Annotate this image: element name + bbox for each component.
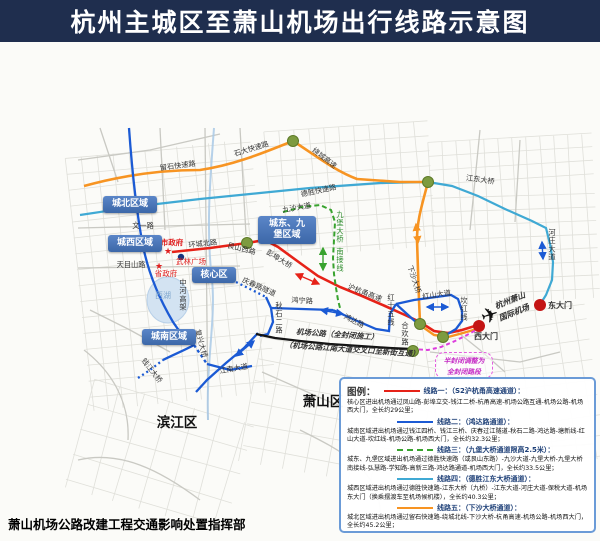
- route-map-page: ★ ★ ✈ 留石快速路石大快速路绕城高速德胜快速路九沙大道江东大桥河庄大道九堡大…: [0, 0, 600, 541]
- airport-east-gate-dot: [534, 299, 546, 311]
- legend-route-row: 线路四：（德胜江东大桥通道）：: [393, 474, 588, 484]
- road-label-hong15-line: 红十五线: [387, 293, 394, 327]
- legend-route-desc: 城南区域进出机场通过钱江四桥、钱江三桥、庆春过江隧道-秋石二路-鸿达路-塘新线-…: [347, 428, 588, 445]
- poi-city-government: 市政府: [161, 237, 184, 247]
- road-label-jiangdong-bridge: 江东大桥: [465, 173, 495, 186]
- road-label-jiubao-bridge: 九堡大桥: [336, 210, 344, 244]
- closure-note-line1: 机场公路（全封闭施工）: [296, 327, 379, 342]
- route-1-s2-line: [172, 240, 478, 333]
- road-label-kanhong-line: 坎红线: [460, 296, 467, 321]
- road-label-hongda-road: 鸿达路: [342, 312, 365, 330]
- issuer-text: 萧山机场公路改建工程交通影响处置指挥部: [8, 514, 246, 533]
- road-label-south-link: 南接线: [336, 247, 343, 272]
- closure-note-line2: （机场公路江南大道交叉口至新街互通）: [285, 340, 420, 358]
- legend-route-row: 线路三：（九堡大桥通道限高2.5米）：: [393, 445, 588, 455]
- legend-route-desc: 核心区进出机场通过凤山路-彭埠立交-钱江二桥-杭甬高速-机场公路互通-机场公路-…: [347, 399, 588, 416]
- legend-route-desc: 城西区域进出机场通过德胜快速路-江东大桥（九桥）-江东大道-河庄大道-保税大道-…: [347, 485, 588, 502]
- legend-title: 图例：: [347, 384, 376, 398]
- arrow-blue-hezhuang: [542, 242, 543, 259]
- arrow-blue-jiangnan: [236, 341, 254, 356]
- title-bar: 杭州主城区至萧山机场出行线路示意图: [0, 0, 600, 42]
- road-label-ring-expressway: 绕城高速: [310, 146, 338, 171]
- junction-dot: [423, 177, 434, 188]
- legend-route-row: 图例：线路一：（S2沪杭甬高速通道）：: [347, 384, 588, 398]
- road-label-wenyi-road: 文一路: [132, 221, 154, 230]
- legend-route-row: 线路五：（下沙大桥通道）：: [393, 503, 588, 513]
- poi-wulin-square: 武林广场: [176, 256, 206, 266]
- junction-dot: [288, 136, 299, 147]
- legend-box: 图例：线路一：（S2沪杭甬高速通道）：核心区进出机场通过凤山路-彭埠立交-钱江二…: [339, 377, 596, 533]
- road-label-desheng-expressway: 德胜快速路: [300, 182, 337, 198]
- legend-route-name: 线路五：（下沙大桥通道）：: [437, 503, 521, 513]
- legend-body: 图例：线路一：（S2沪杭甬高速通道）：核心区进出机场通过凤山路-彭埠立交-钱江二…: [347, 384, 588, 531]
- region-badge: 核心区: [192, 267, 236, 283]
- district-binjiang-label: 滨江区: [157, 414, 198, 431]
- west-lake-label: 西湖: [155, 291, 171, 300]
- legend-line-sample: [397, 507, 433, 509]
- legend-line-sample: [384, 390, 420, 392]
- airport-east-gate-label: 东大门: [548, 300, 572, 310]
- road-label-shida-expressway: 石大快速路: [233, 139, 270, 158]
- road-label-hongshan-avenue: 红山大道: [422, 288, 452, 301]
- legend-route-row: 线路二：（鸿达路通道）：: [393, 417, 588, 427]
- road-label-qianjiang-bridge: 钱江大桥: [140, 356, 165, 384]
- region-badge: 城西区域: [108, 235, 162, 252]
- region-badge: 城北区域: [103, 196, 157, 213]
- legend-route-name: 线路二：（鸿达路通道）：: [437, 417, 514, 427]
- legend-line-sample: [397, 449, 433, 451]
- road-label-qiushi-2nd-road: 秋石二路: [275, 301, 282, 335]
- road-label-hongning-road: 鸿宁路: [291, 295, 313, 305]
- city-gov-star-icon: ★: [164, 247, 172, 257]
- legend-line-sample: [397, 421, 433, 423]
- page-title: 杭州主城区至萧山机场出行线路示意图: [70, 3, 529, 39]
- district-xiaoshan-label: 萧山区: [303, 393, 344, 410]
- road-label-hehuan-road: 合欢路: [401, 321, 408, 346]
- junction-dot: [438, 332, 449, 343]
- legend-route-desc: 城北区域进出机场通过留石快速路-绕城北线-下沙大桥-杭甬高速-机场公路-机场西大…: [347, 514, 588, 531]
- road-label-tianmushan-road: 天目山路: [117, 260, 146, 269]
- legend-route-desc: 城东、九堡区域进出机场通过德胜快速路（或艮山东路）-九沙大道-九堡大桥-九堡大桥…: [347, 456, 588, 473]
- legend-route-name: 线路四：（德胜江东大桥通道）：: [437, 474, 535, 484]
- region-badge: 城东、九 堡区域: [258, 216, 316, 244]
- legend-route-name: 线路一：（S2沪杭甬高速通道）：: [424, 386, 525, 396]
- region-badge: 城南区域: [142, 329, 196, 345]
- closure-adjustment-note: 半封闭调整为 全封闭路段: [435, 352, 493, 379]
- road-label-xiasha-bridge: 下沙大桥: [406, 264, 423, 294]
- road-label-zhonghe-viaduct: 中河高架: [179, 278, 186, 312]
- poi-provincial-government: 省政府: [155, 268, 178, 278]
- legend-line-sample: [397, 478, 433, 480]
- road-label-hezhuang-avenue: 河庄大道: [548, 228, 555, 262]
- legend-route-name: 线路三：（九堡大桥通道限高2.5米）：: [437, 445, 554, 455]
- road-label-jiusha-avenue: 九沙大道: [282, 201, 312, 215]
- airport-west-gate-label: 西大门: [474, 331, 498, 341]
- junction-dot: [415, 319, 426, 330]
